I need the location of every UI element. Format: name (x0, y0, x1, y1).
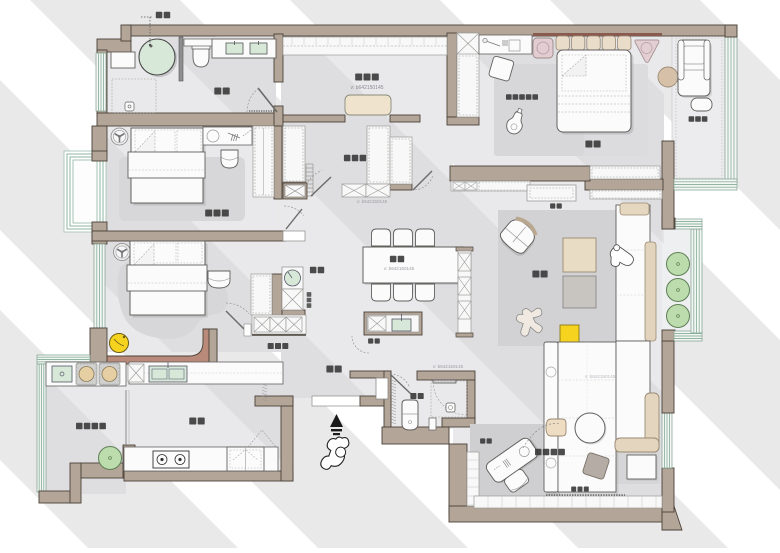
svg-text:v: b642150145: v: b642150145 (585, 374, 616, 379)
svg-text:v: b642150145: v: b642150145 (433, 364, 464, 369)
svg-text:v: b642150145: v: b642150145 (384, 266, 415, 271)
svg-text:v: b642150145: v: b642150145 (357, 199, 388, 204)
svg-text:v: b642150145: v: b642150145 (350, 85, 383, 91)
